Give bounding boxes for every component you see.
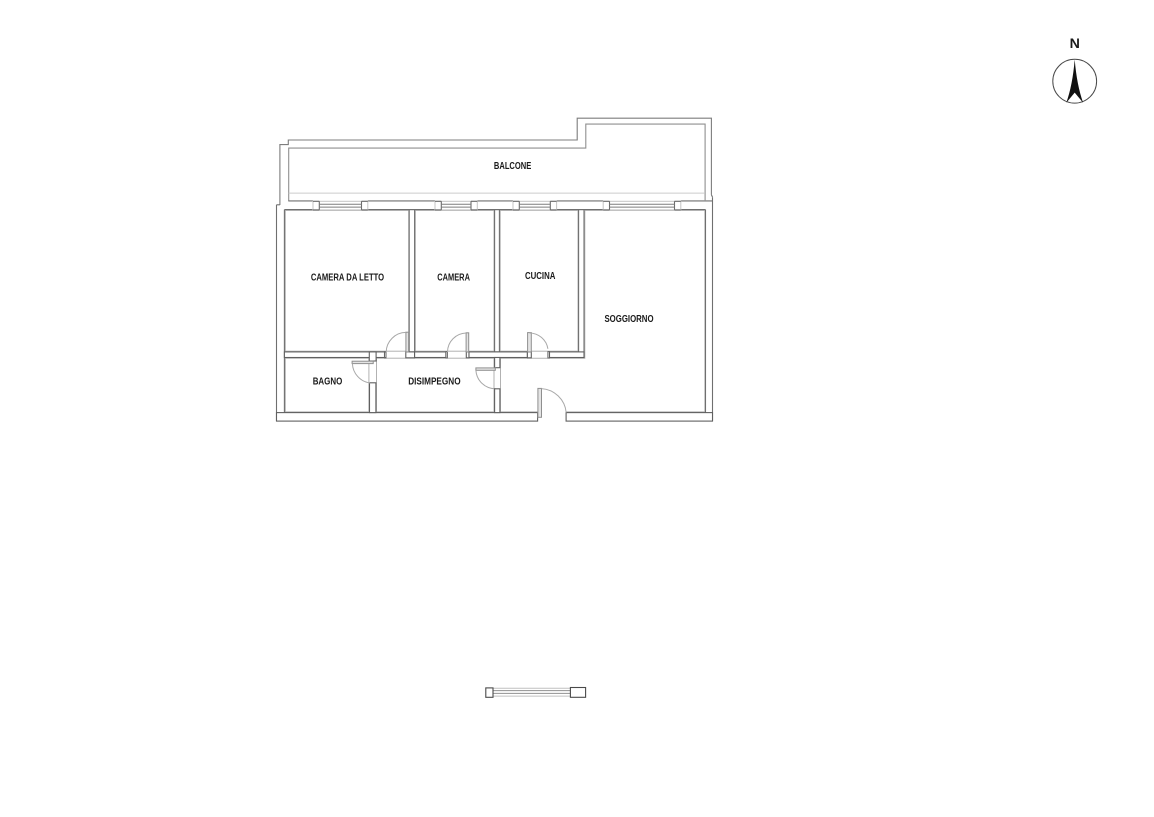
svg-text:N: N	[1070, 36, 1080, 52]
svg-text:BAGNO: BAGNO	[313, 376, 343, 387]
svg-text:CAMERA DA LETTO: CAMERA DA LETTO	[311, 273, 384, 284]
svg-text:DISIMPEGNO: DISIMPEGNO	[408, 376, 461, 387]
svg-text:BALCONE: BALCONE	[494, 161, 532, 172]
svg-text:CAMERA: CAMERA	[437, 273, 470, 284]
svg-text:CUCINA: CUCINA	[525, 271, 555, 282]
svg-text:SOGGIORNO: SOGGIORNO	[604, 314, 653, 325]
